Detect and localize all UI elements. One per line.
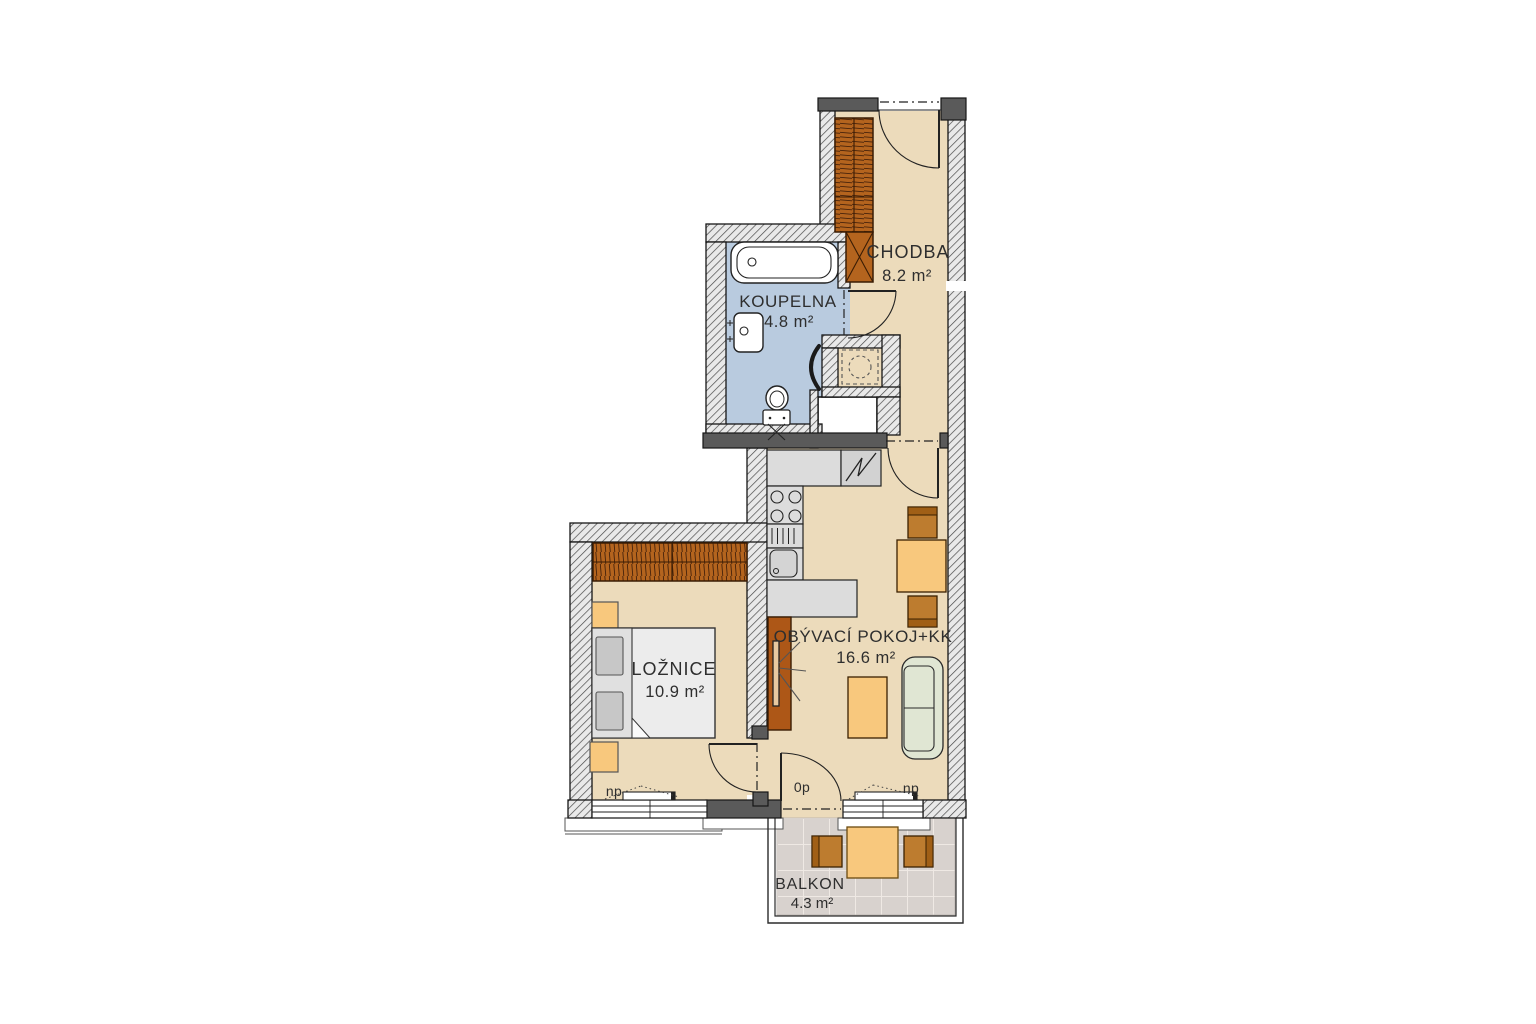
wall-segment [948,115,965,800]
floor-plan: CHODBA 8.2 m² KOUPELNA 4.8 m² LOŽNICE 10… [0,0,1536,1024]
wall-segment [570,523,767,542]
dining-chair-bottom [908,596,937,627]
kitchen-counter-top [767,450,841,486]
wall-segment [753,792,768,806]
wall-segment [706,800,781,818]
bedroom-wardrobe [593,543,747,581]
sofa [902,657,943,759]
room-label-loznice: LOŽNICE [631,659,716,679]
wall-segment [752,726,768,739]
coffee-table [848,677,887,738]
wall-sill [703,818,783,829]
entrance-threshold [878,97,941,111]
wall-joint-gap [946,281,967,291]
wall-segment [570,542,592,805]
room-label-koupelna: KOUPELNA [739,292,836,311]
room-area-balkon: 4.3 m² [791,895,834,912]
wall-segment [568,800,592,818]
wall-segment [877,397,900,435]
pillow [596,692,623,730]
wall-segment [941,98,966,120]
balcony-table [847,827,898,878]
tv-icon [773,641,779,706]
kitchen-counter-low [767,580,857,617]
balcony-chair-right [904,836,933,867]
bedroom-window-sill [565,818,722,831]
utility-niche-floor [838,348,882,387]
wall-segment [940,433,948,448]
stove [767,486,803,524]
wall-segment [820,110,835,230]
dining-chair-top [908,507,937,538]
kitchen-sink [767,548,803,580]
room-area-koupelna: 4.8 m² [764,313,814,331]
room-area-chodba: 8.2 m² [882,267,932,285]
room-label-balkon: BALKON [775,876,845,893]
dish-drainer [767,524,803,548]
wall-segment [923,800,966,818]
fridge [841,450,881,486]
hallway-wardrobe [835,118,873,232]
nightstand-bottom [590,742,618,772]
balcony-chair-left [812,836,842,867]
marker-0p-balcony: 0p [794,779,810,795]
room-label-chodba: CHODBA [866,242,949,262]
dining-table [897,540,946,592]
wall-segment [822,387,900,397]
marker-np-bedroom: np [606,783,622,799]
room-area-loznice: 10.9 m² [645,683,704,701]
wall-segment [706,224,848,242]
wall-segment [703,433,887,448]
pillow [596,637,623,675]
living-window [843,800,923,818]
room-label-obyvaci: OBÝVACÍ POKOJ+KK [774,627,953,646]
wall-segment [818,98,878,111]
nightstand-top [592,602,618,630]
bathtub [731,242,838,283]
room-area-obyvaci: 16.6 m² [836,649,895,667]
floor-plan-page: CHODBA 8.2 m² KOUPELNA 4.8 m² LOŽNICE 10… [0,0,1536,1024]
bedroom-window [592,800,707,818]
shaft [818,397,877,435]
wall-segment [747,448,767,738]
wall-segment [706,242,726,435]
balcony [565,818,963,923]
marker-np-living: np [903,780,919,796]
